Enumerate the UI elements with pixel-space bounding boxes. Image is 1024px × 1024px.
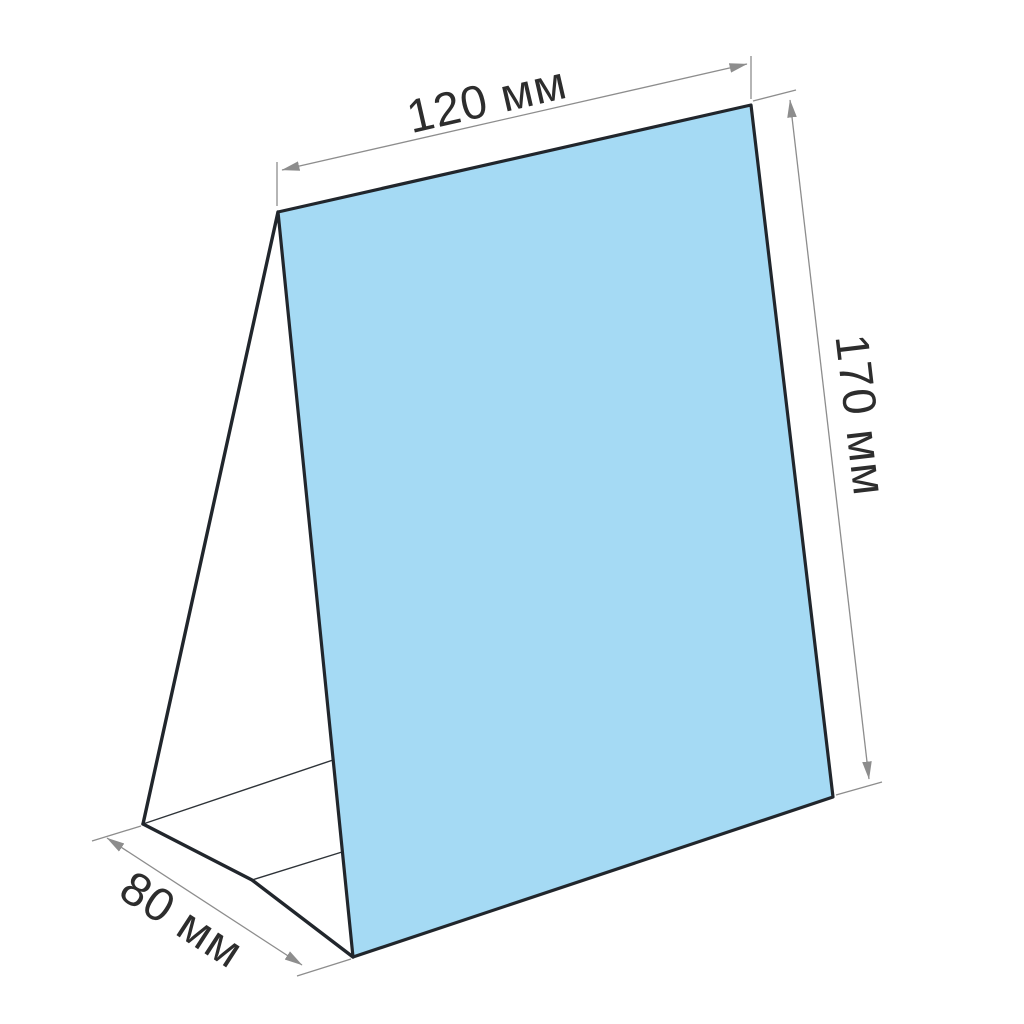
dimension-label-depth: 80 мм xyxy=(111,860,253,978)
extension-line-depth-left xyxy=(92,826,141,841)
extension-line-depth-right xyxy=(297,959,351,976)
base-tuck-fold-line xyxy=(252,852,342,880)
extension-line-height-top xyxy=(753,90,796,101)
diagram-page: 120 мм 170 мм 80 мм xyxy=(0,0,1024,1024)
tent-card xyxy=(143,105,833,957)
dimension-depth: 80 мм xyxy=(92,826,351,978)
front-panel xyxy=(278,105,833,957)
tent-card-dimension-drawing: 120 мм 170 мм 80 мм xyxy=(0,0,1024,1024)
dimension-label-width: 120 мм xyxy=(402,55,572,143)
extension-line-height-bottom xyxy=(836,782,882,795)
base-rear-fold-line xyxy=(143,760,333,824)
dimension-label-height: 170 мм xyxy=(825,331,897,498)
back-panel-left-edge xyxy=(143,212,278,824)
